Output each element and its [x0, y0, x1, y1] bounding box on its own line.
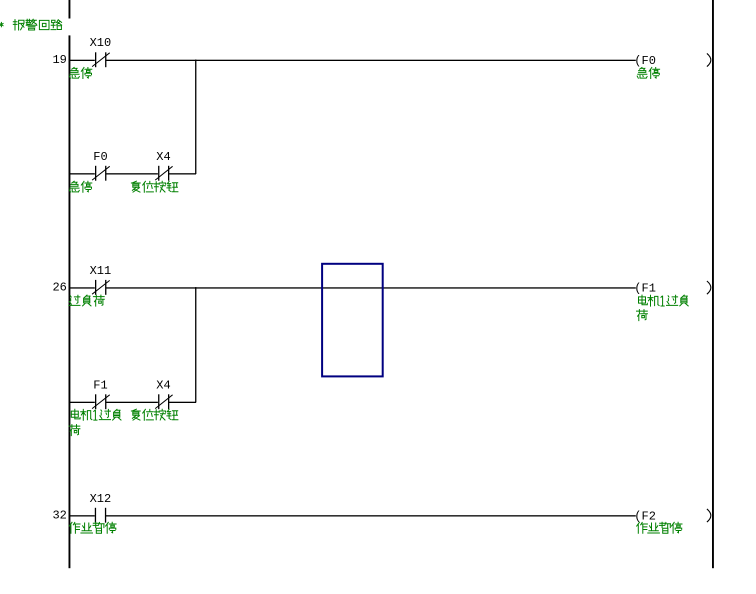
- svg-text:X4: X4: [156, 378, 170, 392]
- svg-text:32: 32: [52, 508, 66, 522]
- svg-text:X11: X11: [90, 264, 112, 278]
- svg-text:F0: F0: [93, 150, 107, 164]
- svg-text:X12: X12: [90, 492, 112, 506]
- svg-text:(F2: (F2: [634, 509, 656, 523]
- svg-text:X4: X4: [156, 150, 170, 164]
- svg-text:F1: F1: [93, 378, 107, 392]
- svg-text:(F0: (F0: [634, 54, 656, 68]
- svg-text:19: 19: [52, 53, 66, 67]
- svg-text:26: 26: [52, 280, 66, 294]
- svg-text:(F1: (F1: [634, 281, 656, 295]
- svg-text:X10: X10: [90, 36, 112, 50]
